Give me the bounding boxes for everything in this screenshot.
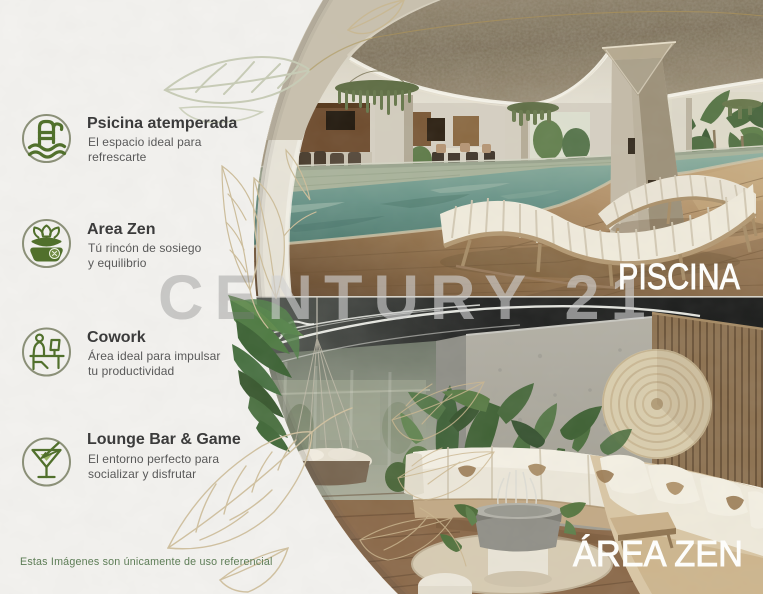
svg-text:ÁREA ZEN: ÁREA ZEN (573, 533, 743, 574)
svg-text:PISCINA: PISCINA (618, 256, 740, 297)
